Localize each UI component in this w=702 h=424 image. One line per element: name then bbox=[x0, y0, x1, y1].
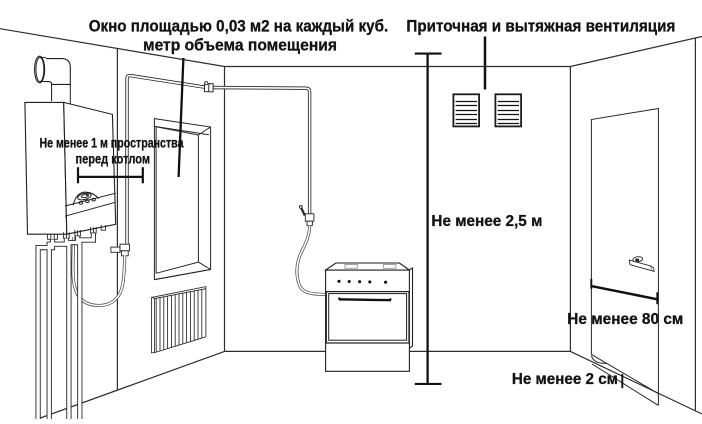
svg-text:перед котлом: перед котлом bbox=[76, 150, 151, 166]
svg-text:Окно площадью 0,03 м2 на кажды: Окно площадью 0,03 м2 на каждый куб. bbox=[89, 16, 389, 35]
svg-text:Не менее 1 м пространства: Не менее 1 м пространства bbox=[40, 134, 184, 150]
svg-text:Приточная и вытяжная вентиляци: Приточная и вытяжная вентиляция bbox=[406, 16, 675, 35]
svg-text:метр объема помещения: метр объема помещения bbox=[143, 36, 337, 55]
svg-text:Не менее 2 см: Не менее 2 см bbox=[512, 371, 618, 388]
svg-text:Не менее 80 см: Не менее 80 см bbox=[567, 311, 683, 328]
svg-text:Не менее 2,5 м: Не менее 2,5 м bbox=[431, 213, 542, 230]
